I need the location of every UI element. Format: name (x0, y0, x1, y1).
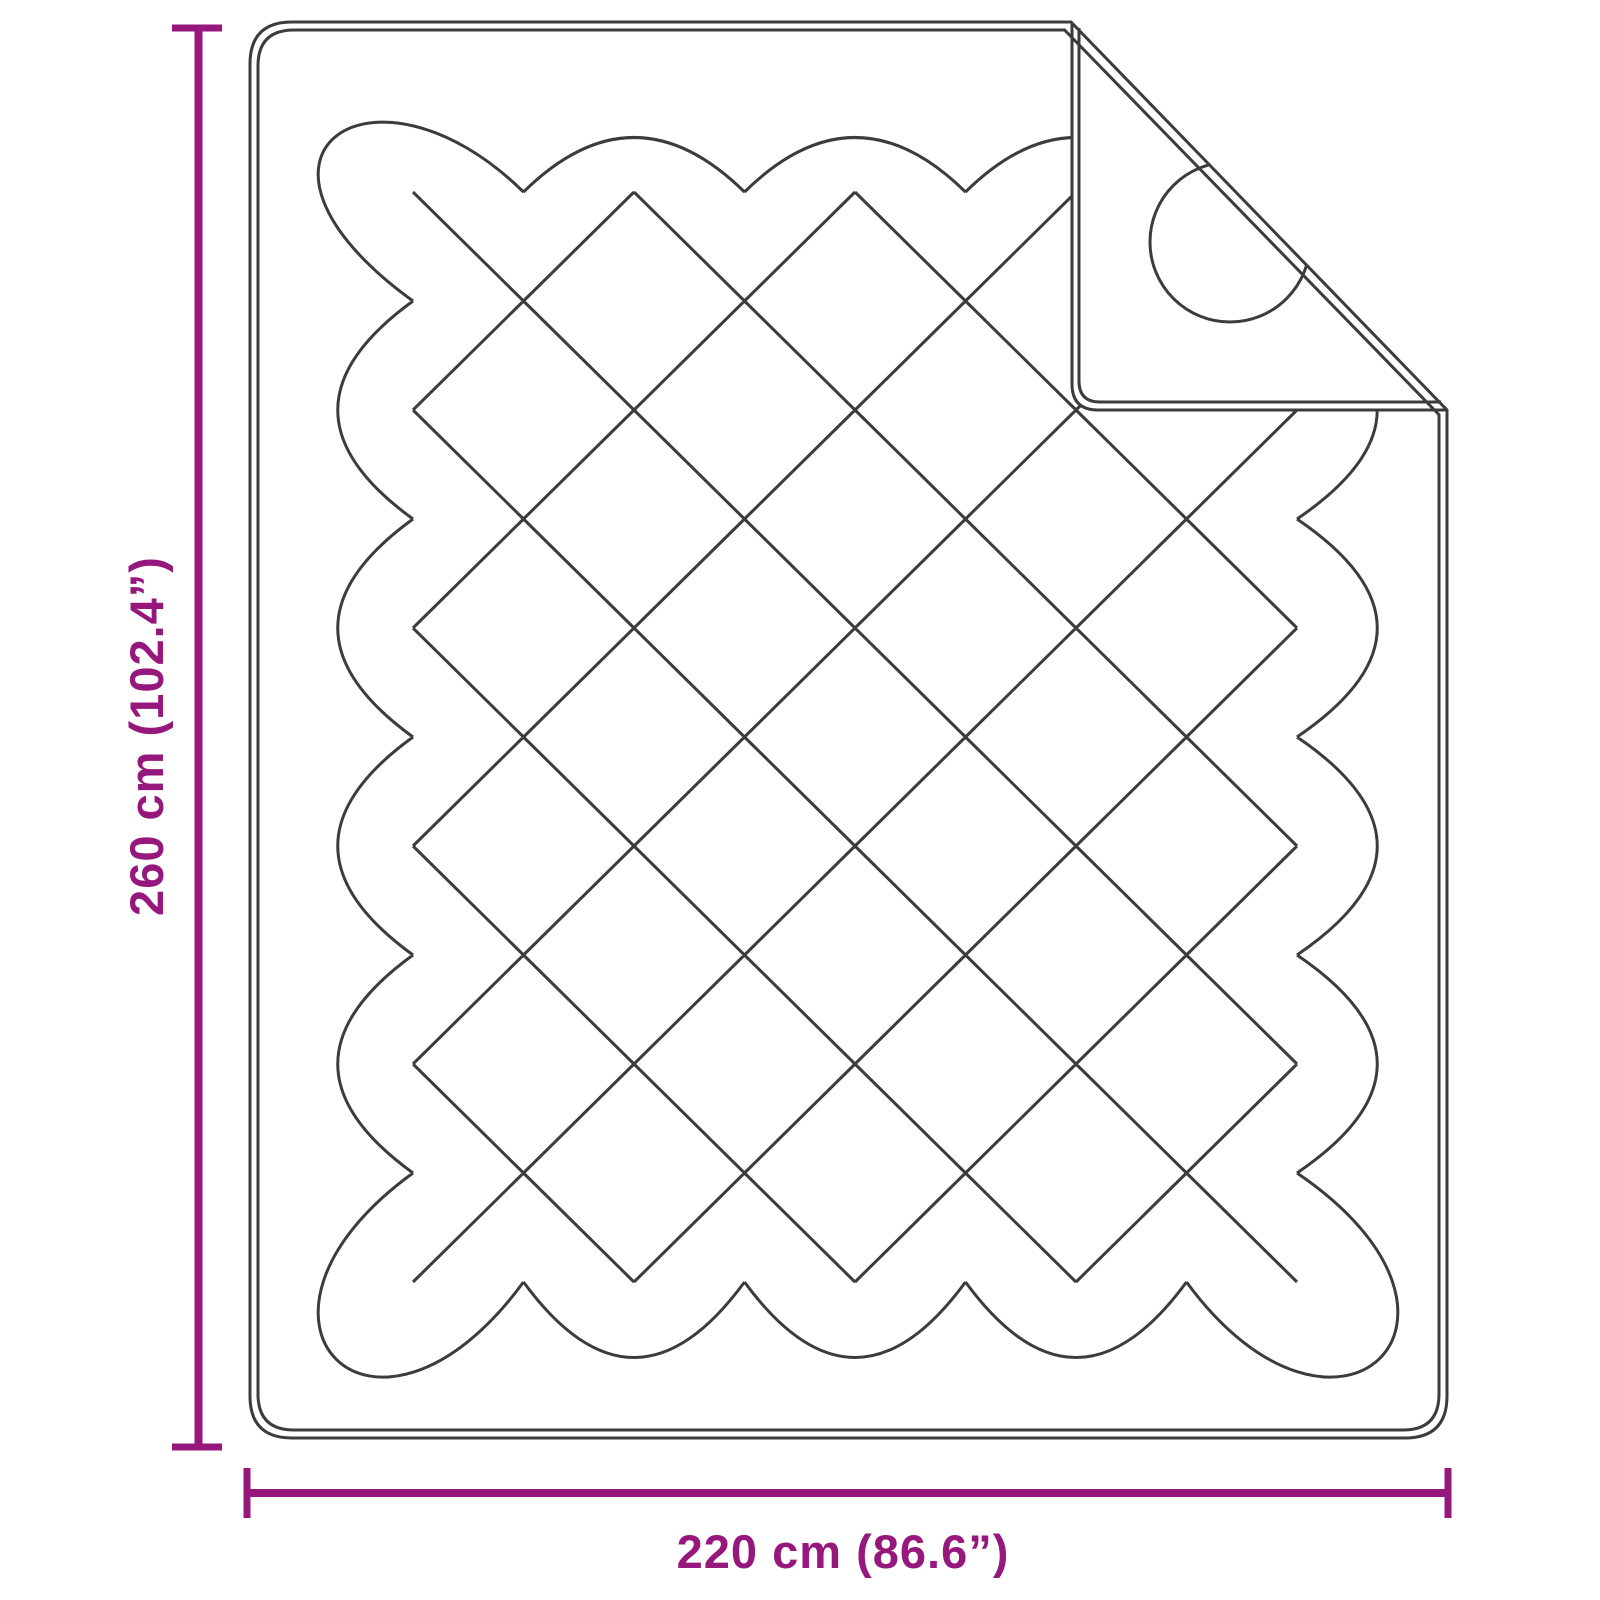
diagram-svg: 260 cm (102.4”) 220 cm (86.6”) (0, 0, 1600, 1600)
height-label: 260 cm (102.4”) (120, 556, 173, 916)
product-dimension-diagram: 260 cm (102.4”) 220 cm (86.6”) (0, 0, 1600, 1600)
width-label: 220 cm (86.6”) (677, 1525, 1010, 1578)
height-dimension: 260 cm (102.4”) (120, 28, 222, 1447)
width-dimension: 220 cm (86.6”) (247, 1468, 1448, 1578)
